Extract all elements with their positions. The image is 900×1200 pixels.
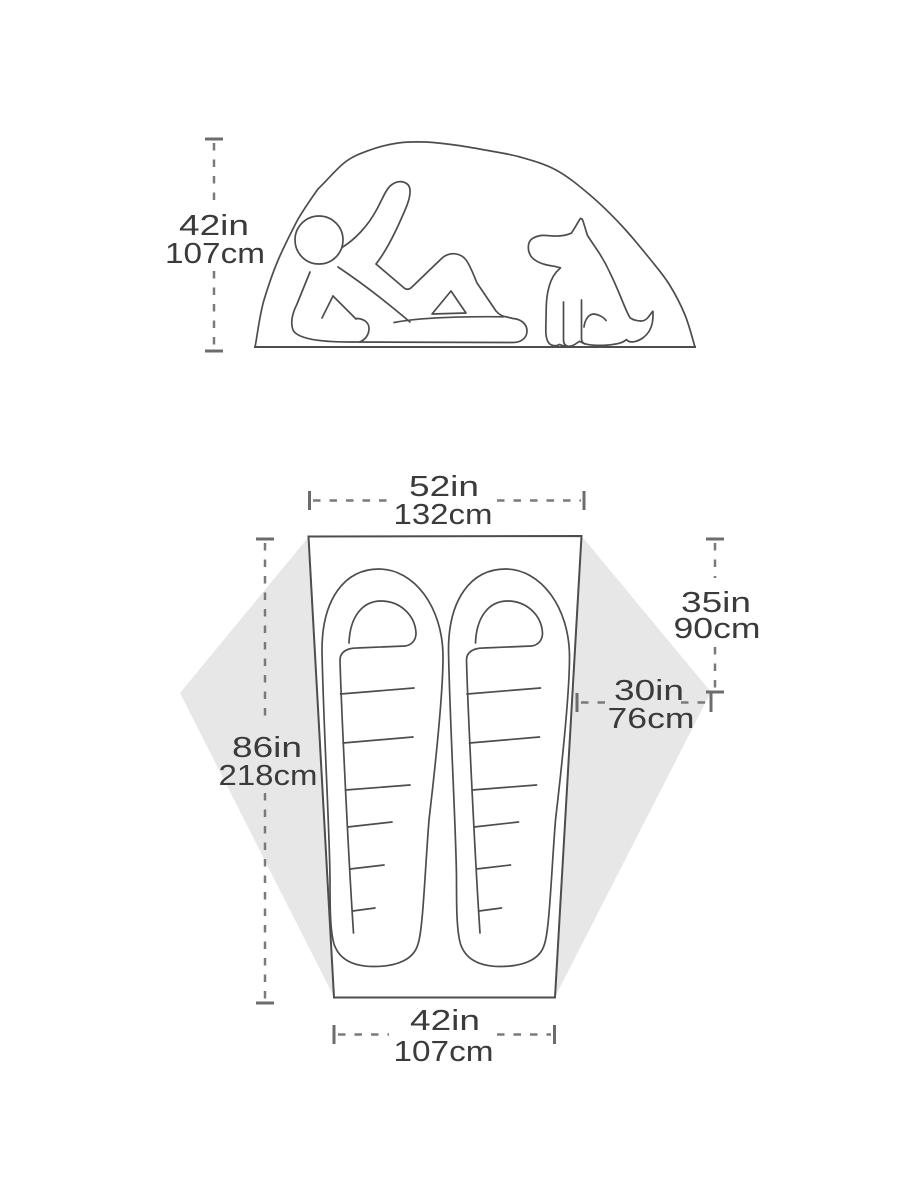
svg-text:90cm: 90cm	[674, 613, 761, 645]
svg-text:218cm: 218cm	[219, 760, 318, 792]
svg-text:42in: 42in	[410, 1005, 480, 1037]
svg-text:132cm: 132cm	[394, 499, 493, 531]
svg-text:107cm: 107cm	[394, 1036, 494, 1068]
svg-text:107cm: 107cm	[165, 238, 265, 270]
svg-text:76cm: 76cm	[608, 703, 695, 735]
